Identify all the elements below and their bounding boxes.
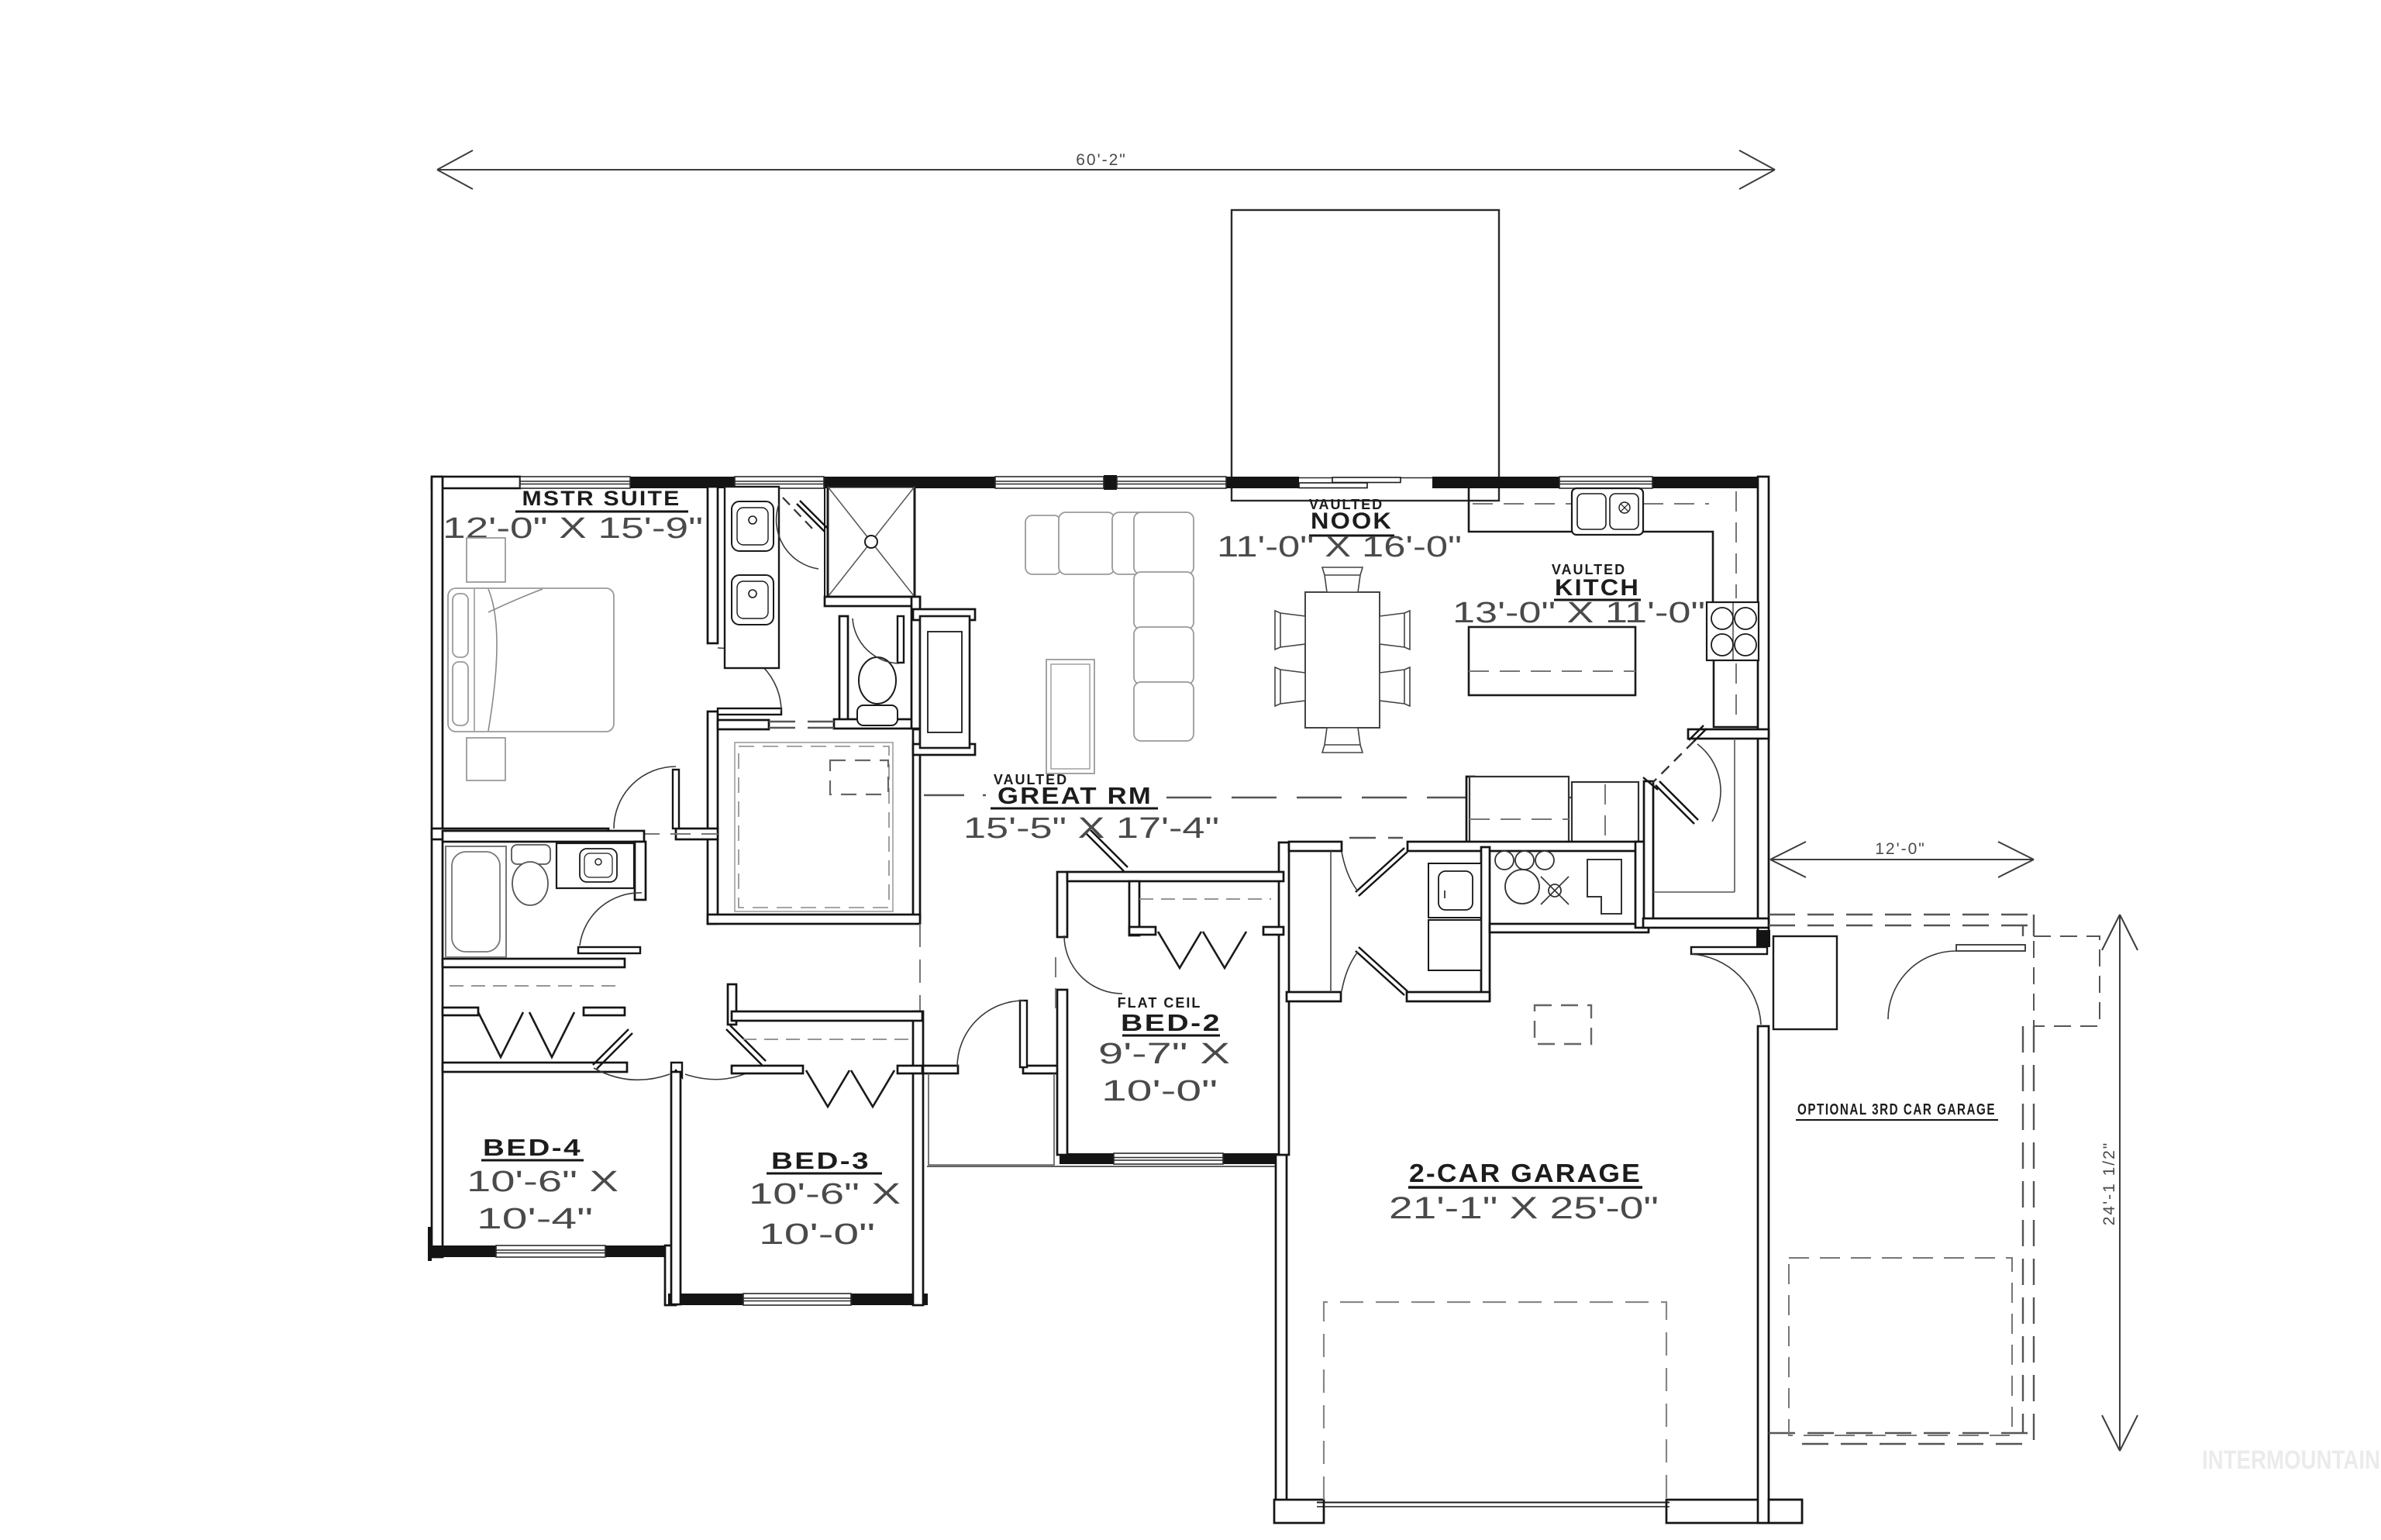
svg-text:21'-1" X 25'-0": 21'-1" X 25'-0"	[1389, 1191, 1659, 1225]
svg-text:OPTIONAL 3RD CAR GARAGE: OPTIONAL 3RD CAR GARAGE	[1797, 1101, 1996, 1118]
svg-text:MSTR SUITE: MSTR SUITE	[522, 487, 681, 510]
svg-text:10'-6" X: 10'-6" X	[749, 1178, 901, 1211]
svg-text:FLAT CEIL: FLAT CEIL	[1118, 995, 1202, 1011]
svg-text:10'-6" X: 10'-6" X	[467, 1166, 619, 1198]
svg-text:10'-0": 10'-0"	[1101, 1075, 1218, 1108]
svg-text:11'-0" X 16'-0": 11'-0" X 16'-0"	[1217, 531, 1462, 563]
svg-text:INTERMOUNTAIN: INTERMOUNTAIN	[2202, 1445, 2380, 1475]
svg-text:9'-7" X: 9'-7" X	[1098, 1038, 1230, 1070]
svg-text:2-CAR GARAGE: 2-CAR GARAGE	[1409, 1159, 1642, 1187]
svg-text:BED-3: BED-3	[771, 1147, 870, 1174]
svg-text:10'-0": 10'-0"	[759, 1218, 875, 1251]
svg-text:60'-2": 60'-2"	[1076, 151, 1127, 169]
svg-text:10'-4": 10'-4"	[477, 1203, 593, 1235]
svg-text:24'-1 1/2": 24'-1 1/2"	[2100, 1142, 2118, 1226]
svg-text:13'-0" X 11'-0": 13'-0" X 11'-0"	[1452, 597, 1705, 629]
svg-text:GREAT RM: GREAT RM	[998, 782, 1153, 809]
svg-text:15'-5" X 17'-4": 15'-5" X 17'-4"	[963, 812, 1219, 845]
svg-text:BED-2: BED-2	[1121, 1009, 1222, 1036]
svg-text:12'-0": 12'-0"	[1875, 840, 1926, 858]
svg-text:BED-4: BED-4	[483, 1134, 582, 1161]
